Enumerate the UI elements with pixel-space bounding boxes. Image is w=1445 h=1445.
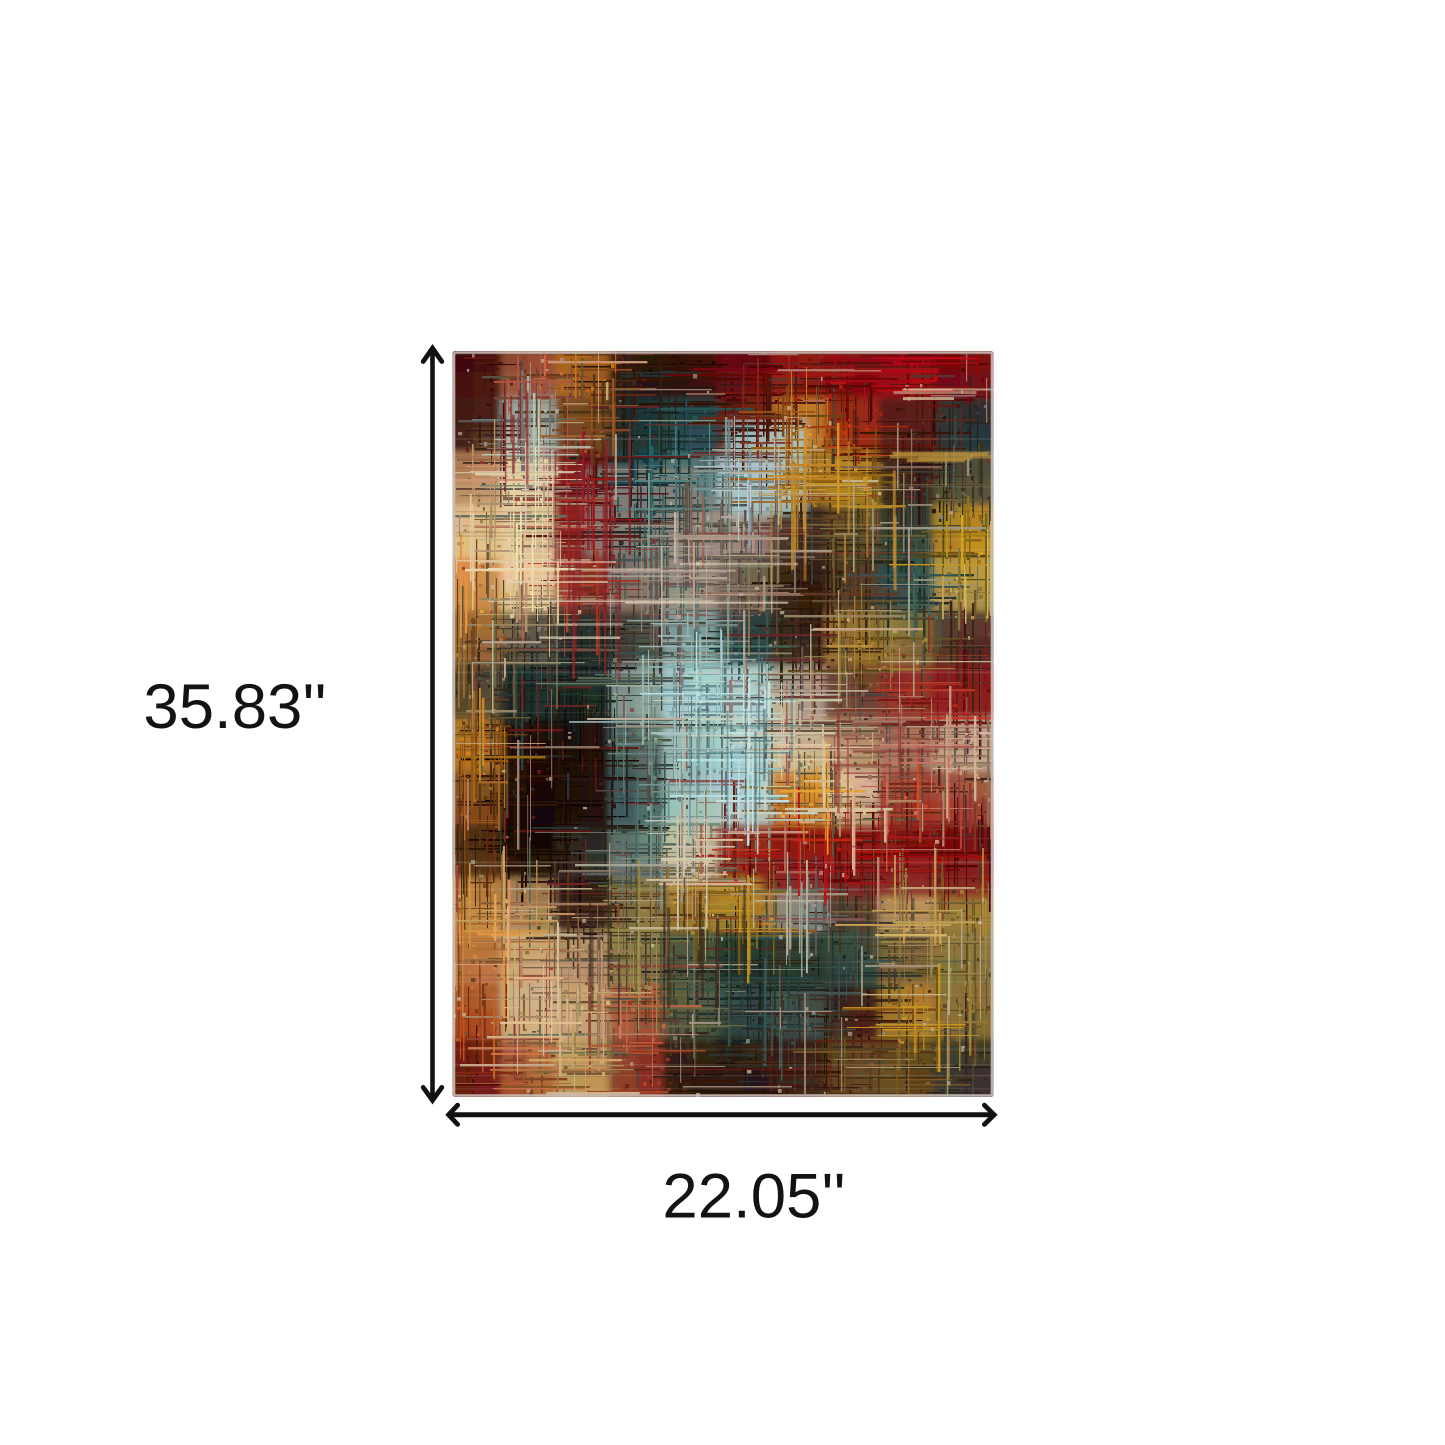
svg-text:22.05'': 22.05''	[662, 1162, 845, 1232]
svg-text:35.83'': 35.83''	[143, 672, 326, 742]
